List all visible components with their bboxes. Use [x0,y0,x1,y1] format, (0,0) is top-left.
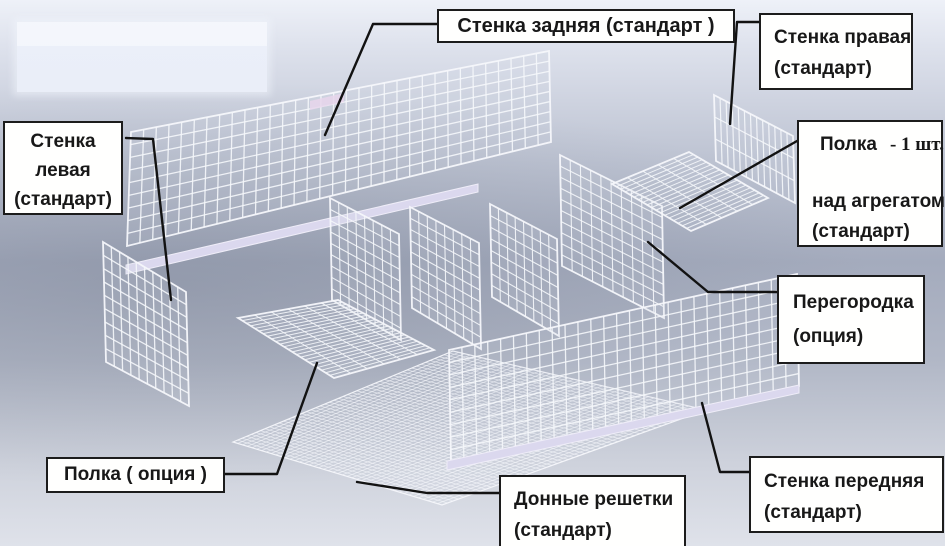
label-text: Стенка задняя (стандарт ) [457,15,714,38]
label-text: Стенка передняя [764,466,942,497]
label-text: (опция) [793,320,923,354]
label-text: (стандарт) [764,497,942,528]
label-text: (стандарт) [774,53,911,84]
label-text: Донные решетки [514,484,684,515]
label-text: левая [5,156,121,185]
label-text: Перегородка [793,286,923,320]
label-text: над агрегатом [812,187,941,217]
label-partition: Перегородка (опция) [777,275,925,364]
label-bottom-grids: Донные решетки (стандарт) [499,475,686,546]
label-front-wall: Стенка передняя (стандарт) [749,456,944,533]
label-text: Полка [820,134,877,155]
label-text: (стандарт) [5,185,121,214]
shelf-option-mesh [238,300,434,378]
label-text: Стенка [5,127,121,156]
label-shelf-over-unit: Полка- 1 шт. над агрегатом (стандарт) [797,120,943,247]
label-left-wall: Стенка левая (стандарт) [3,121,123,215]
exploded-view-page: Стенка задняя (стандарт ) Стенка правая … [0,0,945,546]
label-text: (стандарт) [514,515,684,546]
partition-mesh-3 [490,204,559,336]
label-text: (стандарт) [812,217,941,247]
label-shelf-option: Полка ( опция ) [46,457,225,493]
label-back-wall: Стенка задняя (стандарт ) [437,9,735,43]
label-text: Полка ( опция ) [64,464,207,486]
partition-mesh-2 [410,207,481,349]
label-right-wall: Стенка правая (стандарт) [759,13,913,90]
label-quantity: - 1 шт. [890,134,944,155]
leader-front-wall [702,403,749,472]
label-text: Стенка правая [774,22,911,53]
